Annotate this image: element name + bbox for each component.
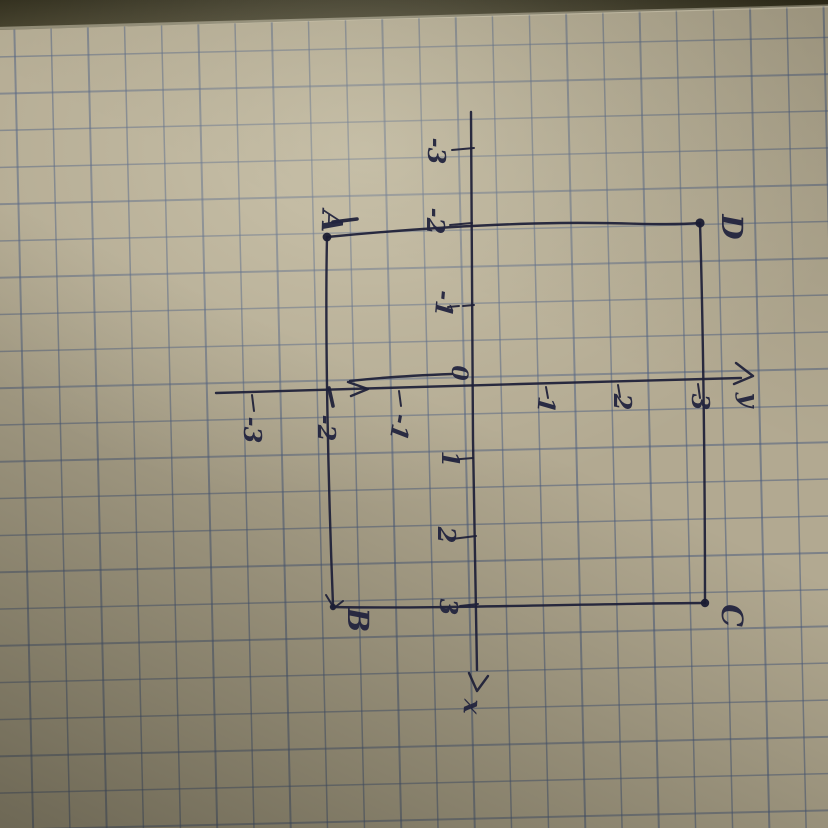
y-axis-line [216,378,741,393]
vertex-dot-a [323,233,332,242]
tick-y-neg3 [252,395,254,411]
corner-label-b: B [341,607,375,633]
origin-label: 0 [446,365,472,381]
tick-label-x-1: 1 [436,451,465,468]
y-axis-overdraw-stroke [350,374,452,381]
tick-label-x-neg1: -1 [429,289,460,318]
corner-label-c: C [715,604,750,628]
rectangle-right-edge [700,223,705,603]
tick-label-y-1: 1 [531,395,561,414]
vertex-dot-d [695,218,704,227]
corner-label-d: D [715,213,749,239]
x-axis-arrowhead-icon [469,673,488,691]
corner-label-a: A [315,207,350,234]
tick-label-y-neg2: -2 [312,415,341,442]
rectangle-top-edge [327,223,700,237]
tick-label-y-3: 3 [686,394,715,411]
x-axis-label: x [457,697,487,716]
x-axis-line [471,112,477,670]
tick-y-neg1 [399,391,401,406]
hand-drawn-figure: A B C D x y 0 -3 -2 -1 1 2 3 -3 -2 -1 1 … [0,0,828,828]
notebook-photo: A B C D x y 0 -3 -2 -1 1 2 3 -3 -2 -1 1 … [0,0,828,828]
tick-label-y-neg1: -1 [384,412,417,443]
rectangle-bottom-edge [333,603,705,607]
tick-x-neg2 [450,223,472,225]
y-axis-label: y [735,392,764,409]
vertex-dot-c [701,599,709,607]
tick-label-x-2: 2 [432,526,461,544]
tick-label-y-2: 2 [608,393,637,411]
tick-label-x-neg3: -3 [422,138,451,165]
tick-label-x-3: 3 [434,599,463,616]
tick-label-y-neg3: -3 [238,417,267,444]
y-axis-arrowhead-icon [734,363,753,384]
tick-label-x-neg2: -2 [421,208,450,235]
